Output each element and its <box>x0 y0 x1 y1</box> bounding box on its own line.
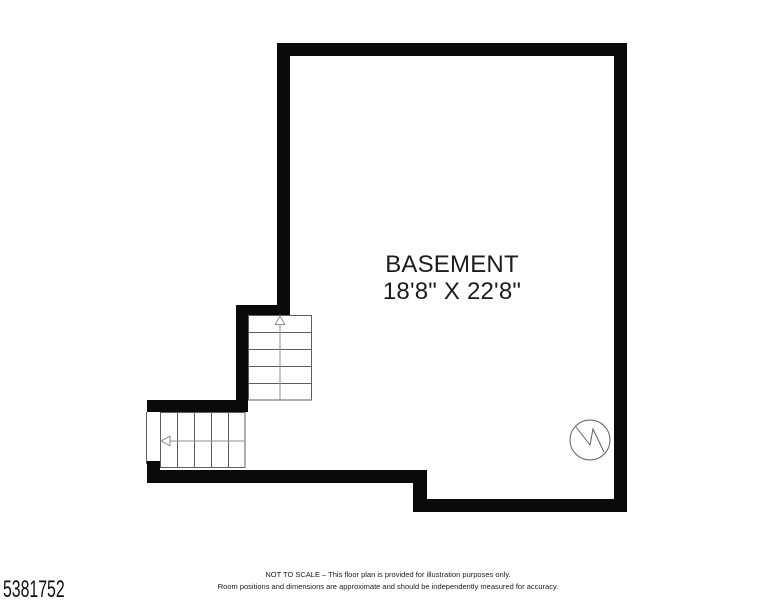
stairs-up-icon <box>249 316 312 401</box>
wall-bottom-left <box>147 470 427 483</box>
wall-left-upper <box>277 43 290 317</box>
disclaimer: NOT TO SCALE – This floor plan is provid… <box>0 569 776 593</box>
wall-bottom-right <box>413 499 627 512</box>
wall-right <box>614 43 627 512</box>
disclaimer-line-1: NOT TO SCALE – This floor plan is provid… <box>0 569 776 581</box>
wall-stair-top <box>147 400 248 412</box>
room-dimensions-label: 18'8" X 22'8" <box>383 278 521 305</box>
wall-left-stub <box>147 461 160 473</box>
wall-top <box>277 43 627 56</box>
stairs-lower-icon <box>161 413 246 468</box>
floorplan-page: BASEMENT 18'8" X 22'8" 5381752 NOT TO SC… <box>0 0 776 600</box>
room-name-label: BASEMENT <box>385 251 519 278</box>
disclaimer-line-2: Room positions and dimensions are approx… <box>0 581 776 593</box>
floorplan-drawing: BASEMENT 18'8" X 22'8" <box>0 0 776 600</box>
utility-circle-icon <box>570 420 610 460</box>
wall-left-mid <box>236 305 248 412</box>
thin-line-layer <box>147 316 611 468</box>
